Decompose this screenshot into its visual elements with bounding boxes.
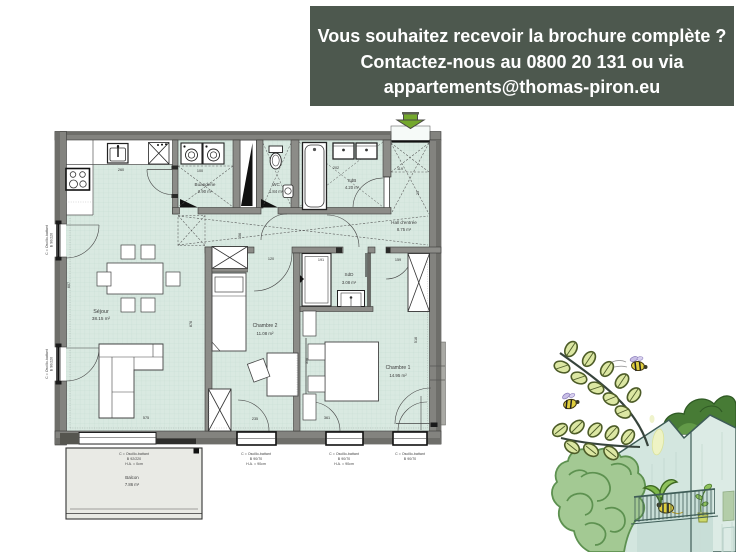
svg-text:H.A. = 0cm: H.A. = 0cm [125,462,143,466]
svg-text:B 90/70: B 90/70 [250,457,262,461]
svg-text:H.A. = 90cm: H.A. = 90cm [246,462,266,466]
svg-text:Buanderie: Buanderie [195,182,216,187]
svg-text:38.15 m²: 38.15 m² [92,316,111,321]
svg-text:159: 159 [395,258,401,262]
svg-text:1.84 m²: 1.84 m² [269,189,284,194]
svg-text:Chambre 1: Chambre 1 [386,365,411,371]
svg-text:C = Oscillo-battant: C = Oscillo-battant [119,452,149,456]
svg-text:B 90/70: B 90/70 [338,457,350,461]
svg-text:C = Oscillo-battant: C = Oscillo-battant [45,349,49,379]
svg-text:C = Oscillo-battant: C = Oscillo-battant [241,452,271,456]
svg-text:H.A. = 90cm: H.A. = 90cm [334,462,354,466]
svg-text:B 90/220: B 90/220 [50,233,54,247]
svg-text:Balcon: Balcon [125,475,139,480]
svg-text:575: 575 [143,416,149,420]
svg-text:4.20 m²: 4.20 m² [345,185,360,190]
svg-text:3.08 m²: 3.08 m² [342,280,357,285]
svg-text:235: 235 [252,417,258,421]
svg-text:Hall d'entrée: Hall d'entrée [391,220,417,225]
svg-text:156: 156 [238,233,242,239]
svg-text:14.95 m²: 14.95 m² [389,373,407,378]
svg-text:Séjour: Séjour [93,309,109,315]
svg-text:11.08 m²: 11.08 m² [256,331,274,336]
svg-text:607: 607 [67,282,71,288]
svg-text:202: 202 [333,166,339,170]
svg-text:WC: WC [272,182,280,187]
svg-text:120: 120 [268,257,274,261]
svg-text:516: 516 [414,337,418,343]
svg-text:SdD: SdD [345,272,355,277]
svg-text:B 90/220: B 90/220 [50,357,54,371]
svg-text:C = Oscillo-battant: C = Oscillo-battant [45,225,49,255]
svg-text:8.75 m²: 8.75 m² [397,227,412,232]
svg-text:361: 361 [324,416,330,420]
svg-text:260: 260 [118,168,124,172]
svg-text:876: 876 [189,321,193,327]
svg-text:C = Oscillo-battant: C = Oscillo-battant [329,452,359,456]
svg-text:C = Oscillo-battant: C = Oscillo-battant [395,452,425,456]
svg-text:7.86 m²: 7.86 m² [125,482,140,487]
svg-text:20: 20 [416,191,420,195]
svg-text:B 92/220: B 92/220 [127,457,141,461]
svg-text:119: 119 [397,167,403,171]
svg-text:356: 356 [305,358,309,364]
svg-text:Chambre 2: Chambre 2 [253,323,278,329]
svg-text:B 90/70: B 90/70 [404,457,416,461]
svg-text:191: 191 [318,258,324,262]
svg-text:100: 100 [197,169,203,173]
svg-text:SdB: SdB [348,178,357,183]
svg-text:2.90 m²: 2.90 m² [198,189,213,194]
